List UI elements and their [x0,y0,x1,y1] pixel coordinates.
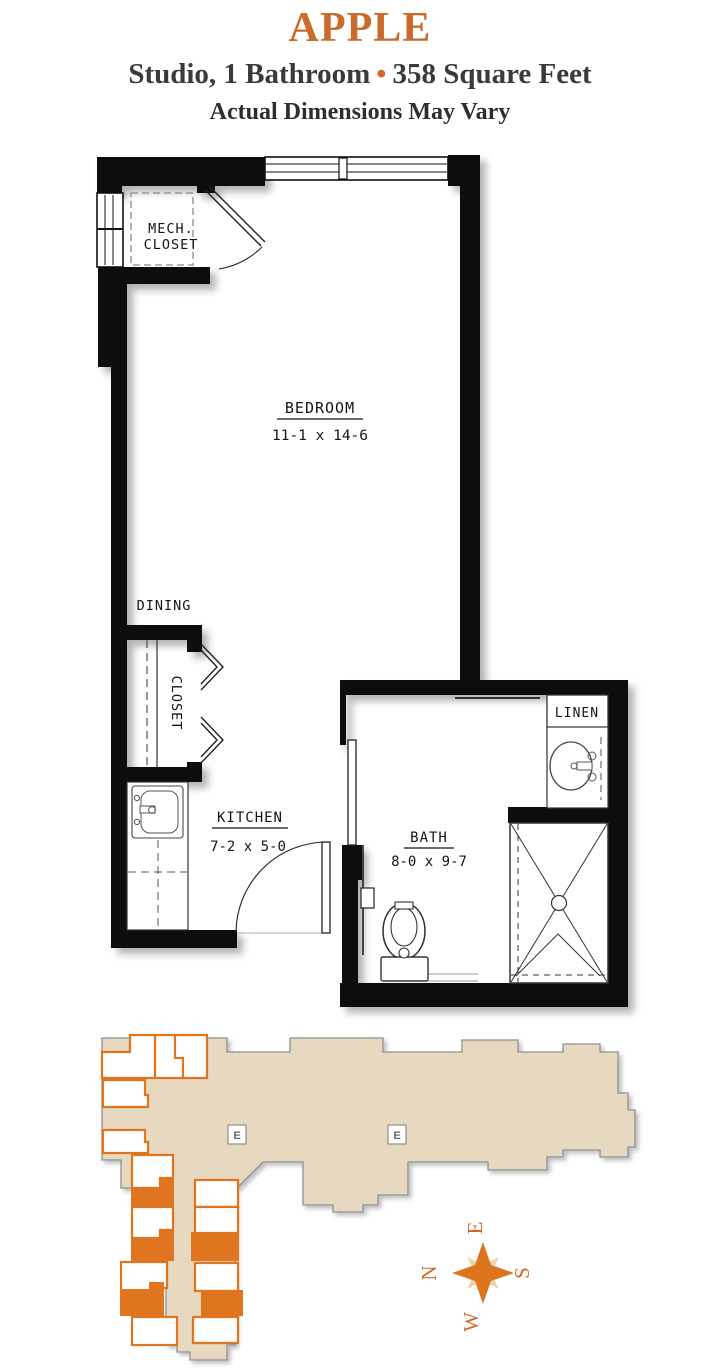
site-plan: E E E N S W [102,1035,635,1360]
room-label-mech-line1: MECH. [148,221,194,237]
kitchen-sink-icon [132,786,183,838]
compass-rose-icon: E N S W [417,1222,534,1332]
closet-interior [147,640,157,767]
building-footprint [102,1038,635,1360]
disclaimer-text: Actual Dimensions May Vary [0,99,720,125]
closet-bifold-doors-icon [201,644,223,763]
room-label-bath: BATH [410,830,448,846]
room-label-kitchen: KITCHEN [217,810,283,826]
unit-highlight [202,1291,242,1315]
unit-outline [193,1317,238,1343]
floor-plan-svg: MECH. CLOSET BEDROOM 11-1 x 14-6 DINING … [0,0,720,1368]
unit-outline [195,1263,238,1291]
compass-letter-e: E [463,1222,487,1235]
room-dims-kitchen: 7-2 x 5-0 [210,839,286,855]
wall-closet-bottom-block [187,762,202,782]
left-window-icon [97,193,123,267]
wall-vanity-stub [508,807,608,823]
unit-outline [103,1080,148,1107]
room-dims-bath: 8-0 x 9-7 [391,854,467,870]
compass-letter-w: W [459,1312,483,1332]
unit-outline [195,1180,238,1207]
compass-letter-s: S [510,1267,534,1279]
wall-top-right-corner [448,155,480,186]
room-label-dining: DINING [137,598,192,614]
wall-bath-top [340,680,628,695]
room-label-linen: LINEN [555,706,599,721]
wall-left [111,283,127,948]
wall-bath-left-mid [342,845,362,880]
wall-bath-right [608,695,628,983]
unit-highlight [192,1233,238,1260]
kitchen-counter [127,782,188,930]
bathroom-vanity-sink-icon [547,727,608,808]
plan-rooms-text: Studio, 1 Bathroom [128,58,370,90]
elevator-label: E [233,1130,240,1142]
room-label-bedroom: BEDROOM [285,399,355,417]
elevator-label: E [393,1130,400,1142]
wall-right [460,184,480,695]
header: APPLE Studio, 1 Bathroom•358 Square Feet… [0,0,720,125]
unit-outline [103,1130,148,1153]
unit-outline [155,1035,207,1078]
room-dims-bedroom: 11-1 x 14-6 [272,428,368,444]
wall-bath-left-upper [340,695,346,745]
page-title: APPLE [0,6,720,50]
wall-closet-top-block [187,625,202,652]
floor-plan: MECH. CLOSET BEDROOM 11-1 x 14-6 DINING … [97,155,628,1007]
wall-top [98,157,265,186]
unit-outline [195,1207,238,1233]
plan-area-text: 358 Square Feet [392,58,591,90]
mech-closet-door-icon [205,186,265,269]
bedroom-window-icon [265,157,448,180]
wall-mech-bottom [98,267,210,284]
plan-summary: Studio, 1 Bathroom•358 Square Feet [0,58,720,90]
unit-outline [132,1317,177,1345]
toilet-icon [381,902,478,981]
wall-bottom-kitchen [111,930,237,948]
room-label-mech-line2: CLOSET [144,237,199,253]
compass-letter-n: N [417,1265,441,1280]
bullet-separator: • [370,58,392,90]
entry-door-icon [236,842,330,933]
wall-bath-bottom [340,983,628,1007]
room-label-closet: CLOSET [168,676,184,731]
shower-icon [510,823,608,983]
